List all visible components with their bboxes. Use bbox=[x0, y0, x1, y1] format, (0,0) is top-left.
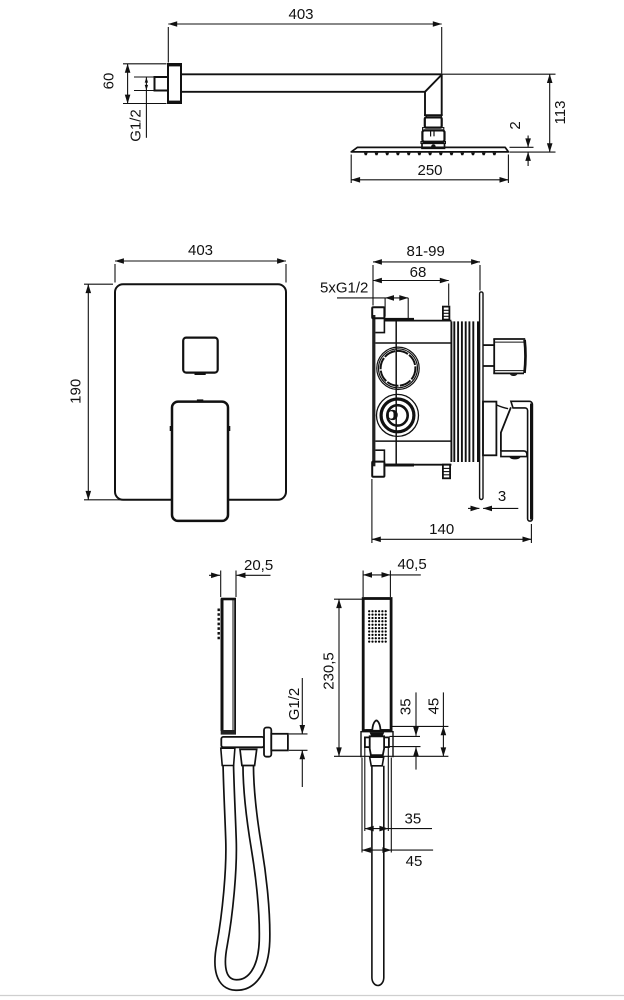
svg-text:35: 35 bbox=[405, 811, 422, 828]
svg-text:68: 68 bbox=[410, 264, 427, 281]
svg-text:403: 403 bbox=[188, 242, 213, 259]
svg-text:190: 190 bbox=[68, 379, 85, 404]
svg-text:250: 250 bbox=[417, 162, 442, 179]
svg-text:113: 113 bbox=[552, 101, 569, 125]
svg-text:G1/2: G1/2 bbox=[286, 688, 303, 721]
svg-text:140: 140 bbox=[429, 521, 454, 538]
svg-text:G1/2: G1/2 bbox=[128, 109, 145, 142]
svg-text:403: 403 bbox=[288, 6, 313, 23]
svg-text:60: 60 bbox=[101, 73, 118, 90]
svg-text:20,5: 20,5 bbox=[244, 557, 273, 574]
svg-text:45: 45 bbox=[426, 698, 443, 715]
svg-text:5xG1/2: 5xG1/2 bbox=[320, 280, 368, 297]
svg-text:45: 45 bbox=[406, 853, 423, 870]
svg-text:40,5: 40,5 bbox=[397, 556, 426, 573]
svg-text:35: 35 bbox=[397, 698, 414, 715]
svg-text:81-99: 81-99 bbox=[407, 243, 445, 260]
svg-text:3: 3 bbox=[498, 488, 506, 505]
svg-text:2: 2 bbox=[507, 121, 524, 129]
svg-text:230,5: 230,5 bbox=[321, 652, 338, 690]
